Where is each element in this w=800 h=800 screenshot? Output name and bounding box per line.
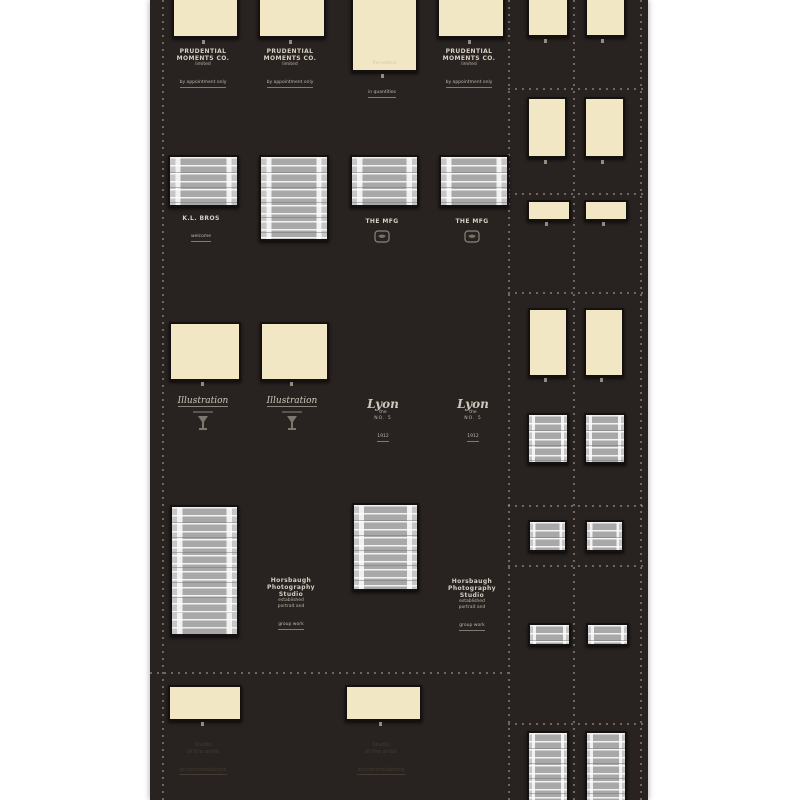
script-logo: Lyon the NO. 5 1912 bbox=[348, 398, 418, 442]
stamp-plaid bbox=[527, 413, 569, 464]
swatch-label: K.L. BROS welcome bbox=[166, 215, 236, 242]
stamp-plaid bbox=[584, 413, 626, 464]
plaid-swatch bbox=[439, 155, 509, 207]
cut-line-horizontal-strip-1 bbox=[508, 88, 648, 90]
ad-card-label: PRUDENTIAL MOMENTS CO. limited by appoin… bbox=[168, 48, 238, 88]
registration-tick-icon bbox=[601, 39, 604, 43]
cut-line-vertical-right-a bbox=[573, 0, 575, 800]
registration-tick-icon bbox=[601, 160, 604, 164]
cut-line-horizontal-strip-3 bbox=[508, 292, 648, 294]
stamp-plaid-tall bbox=[585, 731, 627, 800]
table-ornament-icon bbox=[192, 410, 214, 434]
table-ornament-icon bbox=[281, 410, 303, 434]
stamp-cream bbox=[584, 308, 624, 377]
registration-tick-icon bbox=[544, 378, 547, 382]
stamp-plaid-small bbox=[528, 520, 567, 552]
registration-tick-icon bbox=[201, 722, 204, 726]
registration-tick-icon bbox=[202, 40, 205, 44]
cream-card-wide bbox=[168, 685, 242, 721]
cut-line-vertical-mid bbox=[508, 0, 510, 800]
plaid-swatch-tall bbox=[352, 503, 419, 591]
registration-tick-icon bbox=[289, 40, 292, 44]
cream-card-wide bbox=[345, 685, 422, 721]
stamp-plaid-small bbox=[585, 520, 624, 552]
swatch-label: THE MFG bbox=[347, 218, 417, 251]
cut-line-vertical-right-b bbox=[640, 0, 642, 800]
ad-card-label: PRUDENTIAL MOMENTS CO. limited by appoin… bbox=[255, 48, 325, 88]
cream-card bbox=[260, 322, 329, 381]
registration-tick-icon bbox=[544, 160, 547, 164]
registration-tick-icon bbox=[545, 222, 548, 226]
cut-line-horizontal-main bbox=[150, 672, 508, 674]
cream-card bbox=[437, 0, 505, 38]
stamp-plaid-strip bbox=[528, 623, 571, 646]
stamp-cream bbox=[527, 0, 569, 37]
cream-card bbox=[169, 322, 241, 381]
stamp-cream bbox=[527, 97, 567, 158]
registration-tick-icon bbox=[468, 40, 471, 44]
script-logo: Lyon the NO. 5 1912 bbox=[438, 398, 508, 442]
cream-card bbox=[172, 0, 239, 38]
cream-card bbox=[258, 0, 326, 38]
cut-line-vertical-left bbox=[162, 0, 164, 800]
plaid-swatch bbox=[350, 155, 419, 207]
registration-tick-icon bbox=[379, 722, 382, 726]
cut-line-horizontal-strip-2 bbox=[508, 193, 648, 195]
registration-tick-icon bbox=[602, 222, 605, 226]
plaid-swatch bbox=[168, 155, 239, 207]
stamp-cream bbox=[528, 308, 568, 377]
stamp-cream bbox=[585, 0, 626, 37]
faint-card-label: Studio of the artist accommodations bbox=[336, 742, 426, 775]
registration-tick-icon bbox=[544, 39, 547, 43]
stamp-cream bbox=[584, 97, 625, 158]
script-label: Illustration bbox=[168, 388, 238, 438]
faint-card-label: Studio of the artist accommodations bbox=[158, 742, 248, 775]
registration-tick-icon bbox=[290, 382, 293, 386]
registration-tick-icon bbox=[600, 378, 603, 382]
crest-emblem-icon bbox=[462, 227, 482, 247]
ad-card-label: PRUDENTIAL MOMENTS CO. limited by appoin… bbox=[434, 48, 504, 88]
stamp-plaid-strip bbox=[586, 623, 629, 646]
stamp-cream-strip bbox=[527, 200, 571, 221]
registration-tick-icon bbox=[201, 382, 204, 386]
card-inner-caption: the edition bbox=[353, 61, 416, 66]
studio-text-block: Horsbaugh Photography Studio established… bbox=[260, 577, 322, 630]
crest-emblem-icon bbox=[372, 227, 392, 247]
plaid-swatch-tall bbox=[259, 155, 329, 241]
tall-card-caption: in quantities bbox=[347, 78, 417, 98]
cut-line-horizontal-strip-6 bbox=[508, 723, 648, 725]
cut-line-horizontal-strip-4 bbox=[508, 505, 648, 507]
studio-text-block: Horsbaugh Photography Studio established… bbox=[441, 578, 503, 631]
swatch-label: THE MFG bbox=[437, 218, 507, 251]
photo-of-printed-sheet: the edition PRUDENTIAL MOMENTS CO. limit… bbox=[0, 0, 800, 800]
poster-sheet: the edition PRUDENTIAL MOMENTS CO. limit… bbox=[150, 0, 648, 800]
script-label: Illustration bbox=[257, 388, 327, 438]
plaid-swatch-large bbox=[170, 505, 239, 636]
cut-line-horizontal-strip-5 bbox=[508, 565, 648, 567]
stamp-plaid-tall bbox=[527, 731, 569, 800]
cream-card-tall: the edition bbox=[351, 0, 418, 72]
stamp-cream-strip bbox=[584, 200, 628, 221]
